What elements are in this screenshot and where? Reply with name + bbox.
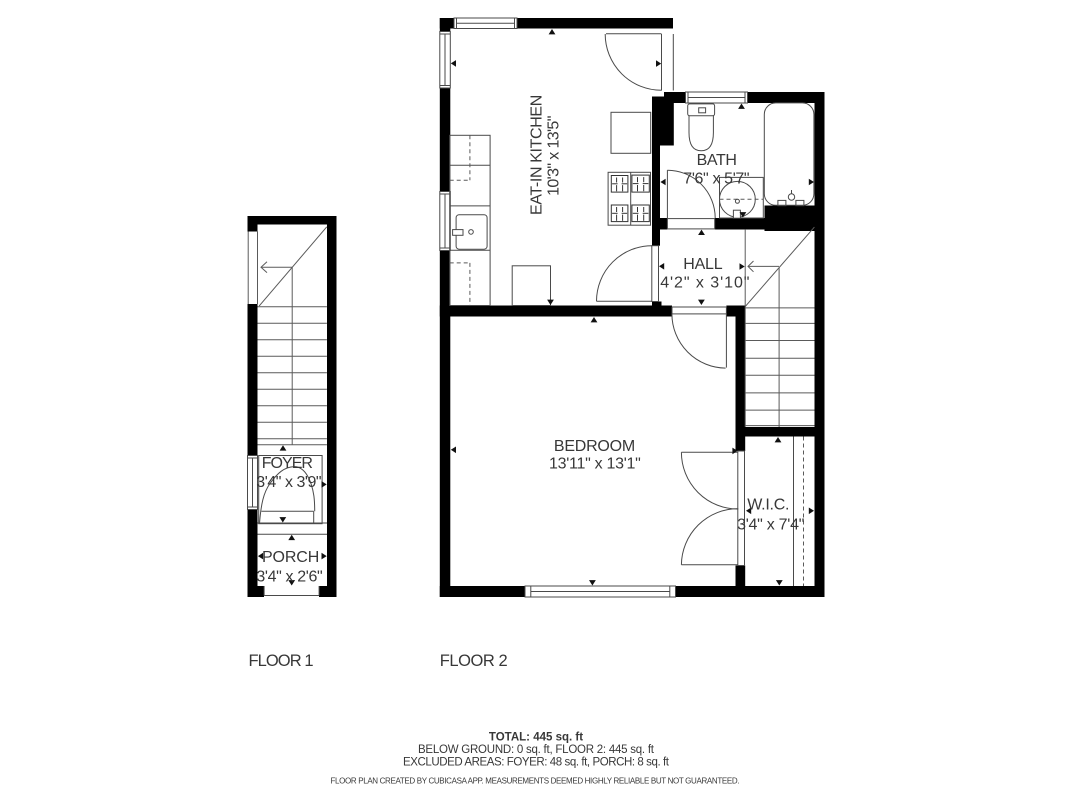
svg-text:BELOW GROUND: 0 sq. ft, FLOOR: BELOW GROUND: 0 sq. ft, FLOOR 2: 445 sq.… <box>418 744 655 756</box>
svg-text:EAT-IN KITCHEN: EAT-IN KITCHEN <box>529 95 546 215</box>
svg-text:FLOOR 2: FLOOR 2 <box>440 652 508 670</box>
svg-text:EXCLUDED AREAS: FOYER: 48 sq.: EXCLUDED AREAS: FOYER: 48 sq. ft, PORCH:… <box>403 757 670 769</box>
svg-text:4'2" x 3'10": 4'2" x 3'10" <box>660 275 749 292</box>
svg-text:3'4" x 3'9": 3'4" x 3'9" <box>256 474 321 491</box>
svg-text:3'4" x 7'4": 3'4" x 7'4" <box>737 516 804 533</box>
svg-text:PORCH: PORCH <box>262 549 319 566</box>
svg-text:FLOOR PLAN CREATED BY CUBICASA: FLOOR PLAN CREATED BY CUBICASA APP. MEAS… <box>331 777 740 786</box>
svg-text:HALL: HALL <box>683 256 722 273</box>
svg-text:BATH: BATH <box>697 152 737 169</box>
svg-text:TOTAL: 445 sq. ft: TOTAL: 445 sq. ft <box>489 732 583 744</box>
svg-text:13'11" x 13'1": 13'11" x 13'1" <box>549 456 641 473</box>
svg-text:BEDROOM: BEDROOM <box>554 438 635 455</box>
svg-text:FLOOR 1: FLOOR 1 <box>249 652 314 670</box>
svg-text:FOYER: FOYER <box>262 455 313 472</box>
svg-text:7'6" x 5'7": 7'6" x 5'7" <box>683 171 749 188</box>
svg-text:10'3" x 13'5": 10'3" x 13'5" <box>546 116 563 196</box>
svg-text:3'4" x 2'6": 3'4" x 2'6" <box>256 568 322 585</box>
svg-text:W.I.C.: W.I.C. <box>747 497 789 514</box>
